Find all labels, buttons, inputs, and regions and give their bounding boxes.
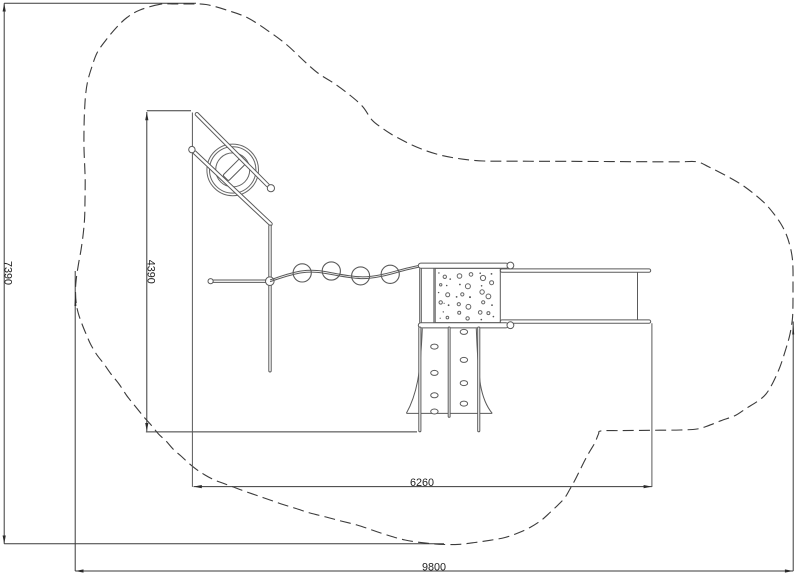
svg-text:7390: 7390	[1, 261, 13, 285]
svg-text:6260: 6260	[410, 477, 434, 489]
svg-text:9800: 9800	[422, 562, 446, 574]
svg-text:4390: 4390	[145, 260, 157, 284]
